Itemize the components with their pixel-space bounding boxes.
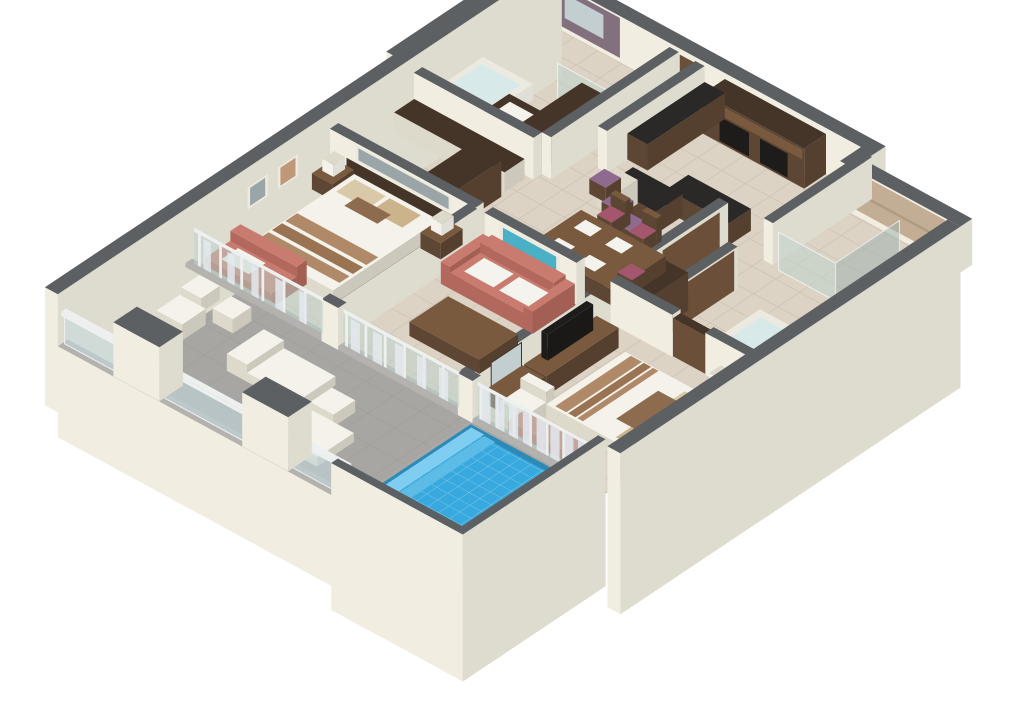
curtains-master-4 (537, 418, 546, 455)
entry-kitchen-wall-sw-face (598, 126, 607, 173)
mullions-living-0 (345, 314, 348, 348)
curtains-living-4 (439, 367, 448, 402)
curtains-master-1 (495, 395, 504, 432)
sofa-back-wall-se-shade (577, 257, 585, 305)
mullions-living-1 (365, 324, 368, 358)
mullions-bedroom2-2 (240, 257, 243, 291)
bathroom1-entry-wall-sw-face (542, 132, 551, 179)
curtains-master-0 (481, 388, 490, 425)
curtains-living-0 (351, 319, 360, 354)
dining-chair-back-1-se-shade (625, 198, 630, 227)
door-pier-2-sw-face (458, 373, 473, 423)
television-sw-face (541, 331, 547, 361)
dining-chair-back-2-se-shade (657, 215, 662, 244)
curtains-master-3 (523, 410, 532, 447)
curtains-living-3 (417, 355, 426, 390)
hall-bath2-wall-a-sw-face (764, 218, 773, 265)
curtains-bedroom2-1 (227, 252, 234, 286)
mullions-master-4 (546, 423, 549, 457)
curtains-living-1 (373, 331, 382, 366)
door-pier-1 (322, 293, 347, 350)
bathroom2-ne-wall-se-shade (961, 219, 973, 273)
mullions-bedroom2-0 (198, 234, 201, 267)
floorplan-3d-render (0, 0, 1024, 720)
curtains-master-5 (550, 425, 559, 462)
se-exterior-wall-sw-face (607, 446, 620, 614)
curtains-bedroom2-4 (299, 291, 306, 325)
scene-root (45, 0, 972, 681)
mullions-bedroom2-1 (219, 245, 222, 278)
mullions-bedroom2-3 (262, 268, 265, 302)
curtains-bedroom2-0 (204, 239, 211, 273)
pool-sw-wall-se-shade (463, 530, 470, 682)
mullions-bedroom2-4 (283, 280, 286, 314)
curtains-bedroom2-3 (275, 278, 282, 312)
curtains-bedroom2-2 (251, 265, 258, 299)
floorplan-stage (0, 0, 1024, 720)
curtains-living-2 (395, 343, 404, 378)
curtains-master-2 (509, 403, 518, 440)
nw-exterior-wall-sw-face (45, 287, 58, 412)
mullions-living-2 (384, 335, 387, 369)
bathroom1-south-wall-se-shade (534, 132, 542, 180)
door-pier-2 (458, 367, 481, 423)
